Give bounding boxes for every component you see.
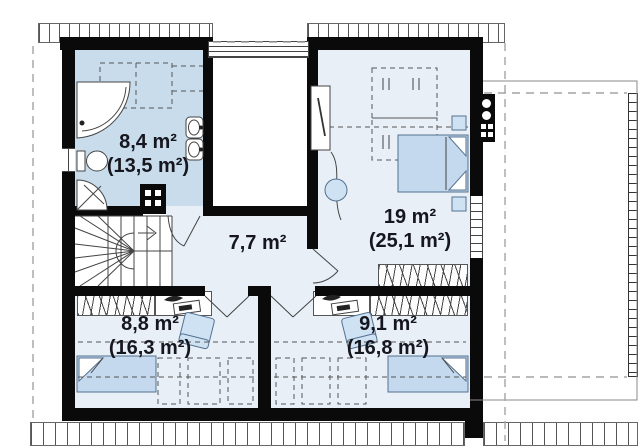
chimney-icon (478, 94, 495, 142)
room-label-bedroom-large: 19 m² (25,1 m²) (340, 205, 480, 253)
doorway-floor (271, 286, 315, 296)
room-area-total: (25,1 m²) (340, 229, 480, 253)
room-label-bedroom-br: 9,1 m² (16,8 m²) (318, 312, 458, 360)
void-floor (213, 50, 307, 206)
room-area: 7,7 m² (195, 231, 320, 255)
window (62, 148, 75, 172)
wall (248, 286, 271, 296)
wall (307, 50, 318, 249)
wall (75, 206, 143, 216)
wardrobe (378, 264, 468, 287)
wall (203, 206, 318, 216)
room-area-total: (16,8 m²) (318, 336, 458, 360)
room-area: 9,1 m² (318, 312, 458, 336)
wall-corner-block (465, 408, 483, 438)
balcony-railing (628, 93, 638, 377)
roof-eave-hatch-bottom-right (483, 422, 638, 446)
bathroom-floor (75, 50, 203, 206)
wall (75, 286, 205, 296)
roof-eave-hatch-bottom-left (30, 422, 465, 446)
wall (62, 37, 75, 148)
balcony-outline (470, 81, 637, 400)
room-area: 8,4 m² (78, 130, 218, 154)
chimney-icon (140, 184, 166, 214)
room-label-hall: 7,7 m² (195, 231, 320, 255)
wall (62, 408, 483, 421)
room-area: 19 m² (340, 205, 480, 229)
room-label-bedroom-bl: 8,8 m² (16,3 m²) (80, 312, 220, 360)
wall (470, 258, 483, 410)
room-area: 8,8 m² (80, 312, 220, 336)
wall (60, 37, 213, 50)
doorway-floor (166, 206, 203, 216)
wall (315, 286, 470, 296)
floor-plan: 8,4 m² (13,5 m²) 19 m² (25,1 m²) 7,7 m² … (0, 0, 640, 448)
stairs-floor (75, 216, 172, 286)
wall (307, 37, 483, 50)
room-area-total: (13,5 m²) (78, 154, 218, 178)
wall (62, 172, 75, 410)
room-area-total: (16,3 m²) (80, 336, 220, 360)
window (208, 41, 309, 58)
room-label-bathroom: 8,4 m² (13,5 m²) (78, 130, 218, 178)
wall (258, 296, 271, 408)
